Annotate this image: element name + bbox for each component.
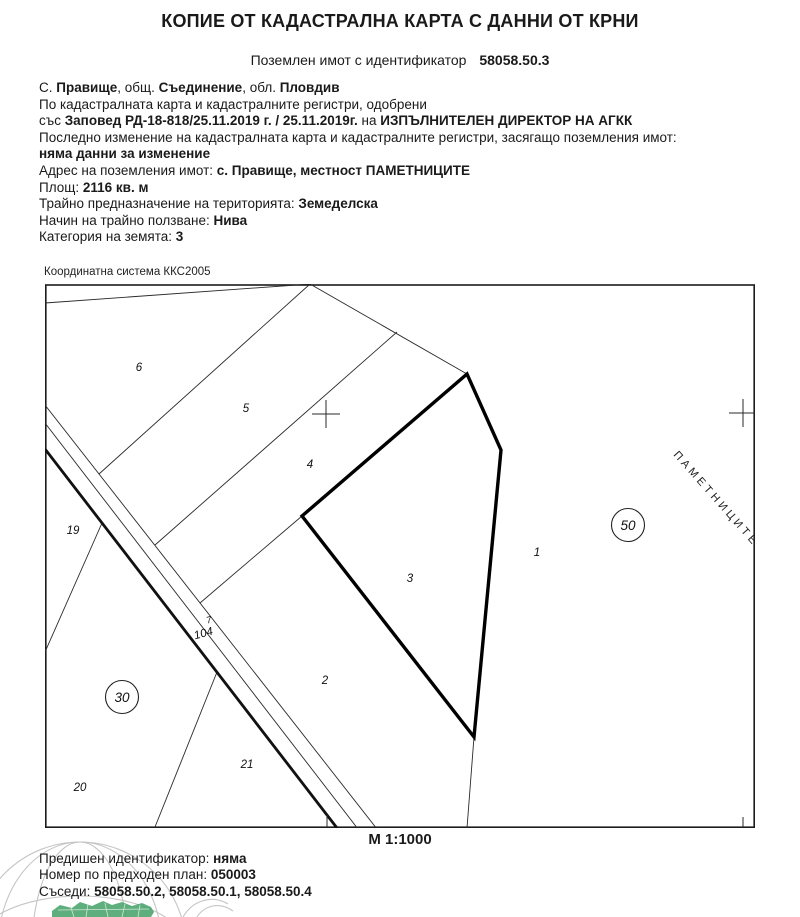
text-segment: Съседи:: [39, 884, 94, 899]
text-segment: Адрес на поземления имот:: [39, 163, 217, 178]
cadastral-map: 6 5 4 3 2 1 19 20 21 104 7 30 50 ПАМЕТНИ…: [45, 284, 755, 828]
text-segment: С.: [39, 80, 56, 95]
boundary-line-ne: [310, 284, 467, 374]
boundary-line: [45, 284, 310, 303]
text-segment: няма: [213, 851, 246, 866]
info-line-area: Площ: 2116 кв. м: [39, 180, 779, 197]
info-line-settlement: С. Правище, общ. Съединение, обл. Пловди…: [39, 80, 779, 97]
info-line-order: със Заповед РД-18-818/25.11.2019 г. / 25…: [39, 113, 779, 130]
parcel-label: 2: [321, 675, 329, 687]
coordinate-system-label: Координатна система ККС2005: [44, 266, 211, 278]
text-segment: Площ:: [39, 180, 83, 195]
text-segment: , общ.: [117, 80, 158, 95]
boundary-line-20-21: [155, 672, 217, 827]
region-number: 50: [620, 518, 636, 533]
text-segment: на: [358, 113, 380, 128]
text-segment: Начин на трайно ползване:: [39, 213, 214, 228]
parcel-label: 7: [205, 614, 214, 626]
footer-line-neighbours: Съседи: 58058.50.2, 58058.50.1, 58058.50…: [39, 884, 779, 900]
grid-cross: [729, 399, 755, 427]
info-line-territory-purpose: Трайно предназначение на територията: Зе…: [39, 196, 779, 213]
parcel-label: 21: [240, 759, 254, 771]
text-segment: 3: [176, 229, 184, 244]
parcel-boundaries: [45, 284, 474, 828]
footer-line-previous-id: Предишен идентификатор: няма: [39, 851, 779, 867]
text-segment: Съединение: [159, 80, 243, 95]
property-id-value: 58058.50.3: [479, 52, 549, 68]
text-segment: с. Правище, местност ПАМЕТНИЦИТЕ: [217, 163, 470, 178]
text-segment: Правище: [56, 80, 117, 95]
boundary-line-6-5: [99, 284, 310, 474]
text-segment: Трайно предназначение на територията:: [39, 196, 298, 211]
subject-parcel-label: 3: [407, 573, 414, 585]
text-segment: Нива: [214, 213, 248, 228]
orbit-arc: [197, 906, 233, 917]
info-line-address: Адрес на поземления имот: с. Правище, ме…: [39, 163, 779, 180]
boundary-line-5-4: [155, 332, 397, 545]
parcel-label: 4: [307, 459, 313, 471]
text-segment: ИЗПЪЛНИТЕЛЕН ДИРЕКТОР НА АГКК: [380, 113, 632, 128]
text-segment: Категория на земята:: [39, 229, 176, 244]
text-segment: Предишен идентификатор:: [39, 851, 213, 866]
parcel-label: 5: [243, 403, 250, 415]
footer-line-previous-plan: Номер по предходен план: 050003: [39, 867, 779, 883]
map-border: [46, 285, 754, 827]
map-scale-label: М 1:1000: [320, 831, 480, 848]
text-segment: Последно изменение на кадастралната карт…: [39, 130, 677, 145]
parcel-label: 19: [67, 525, 80, 537]
text-segment: Земеделска: [298, 196, 378, 211]
info-line-land-category: Категория на земята: 3: [39, 229, 779, 246]
property-id-label: Поземлен имот с идентификатор: [251, 52, 467, 68]
property-id-line: Поземлен имот с идентификатор 58058.50.3: [0, 52, 800, 68]
parcel-label: 20: [73, 782, 87, 794]
text-segment: няма данни за изменение: [39, 146, 210, 161]
text-segment: Номер по предходен план:: [39, 867, 211, 882]
parcel-label: 6: [136, 362, 143, 374]
property-info-block: С. Правище, общ. Съединение, обл. Пловди…: [39, 80, 779, 246]
document-title: КОПИЕ ОТ КАДАСТРАЛНА КАРТА С ДАННИ ОТ КР…: [0, 11, 800, 32]
text-segment: Пловдив: [280, 80, 340, 95]
subject-parcel-outline: [302, 374, 501, 737]
boundary-line-south: [467, 737, 474, 828]
boundary-line-4-2: [200, 516, 302, 603]
boundary-line-19-20: [45, 523, 102, 652]
text-segment: 050003: [211, 867, 256, 882]
info-line-approved: По кадастралната карта и кадастралните р…: [39, 97, 779, 114]
locality-name-label: ПАМЕТНИЦИТЕ: [671, 449, 755, 549]
text-segment: 58058.50.2, 58058.50.1, 58058.50.4: [94, 884, 312, 899]
info-line-last-change: Последно изменение на кадастралната карт…: [39, 130, 779, 147]
info-line-land-use: Начин на трайно ползване: Нива: [39, 213, 779, 230]
parcel-label: 1: [534, 547, 540, 559]
text-segment: По кадастралната карта и кадастралните р…: [39, 97, 427, 112]
road-edge-line: [45, 405, 377, 828]
text-segment: 2116 кв. м: [83, 180, 149, 195]
region-boundary-bold-line: [45, 449, 337, 828]
text-segment: със: [39, 113, 65, 128]
region-number: 30: [114, 690, 130, 705]
road-parcel-label: 104: [193, 626, 215, 643]
text-segment: Заповед РД-18-818/25.11.2019 г. / 25.11.…: [65, 113, 358, 128]
cadastral-document-page: КОПИЕ ОТ КАДАСТРАЛНА КАРТА С ДАННИ ОТ КР…: [0, 0, 800, 917]
text-segment: , обл.: [242, 80, 280, 95]
info-line-no-change: няма данни за изменение: [39, 146, 779, 163]
footer-info-block: Предишен идентификатор: няма Номер по пр…: [39, 851, 779, 900]
road-edge-line: [45, 423, 358, 828]
grid-cross: [312, 400, 340, 428]
